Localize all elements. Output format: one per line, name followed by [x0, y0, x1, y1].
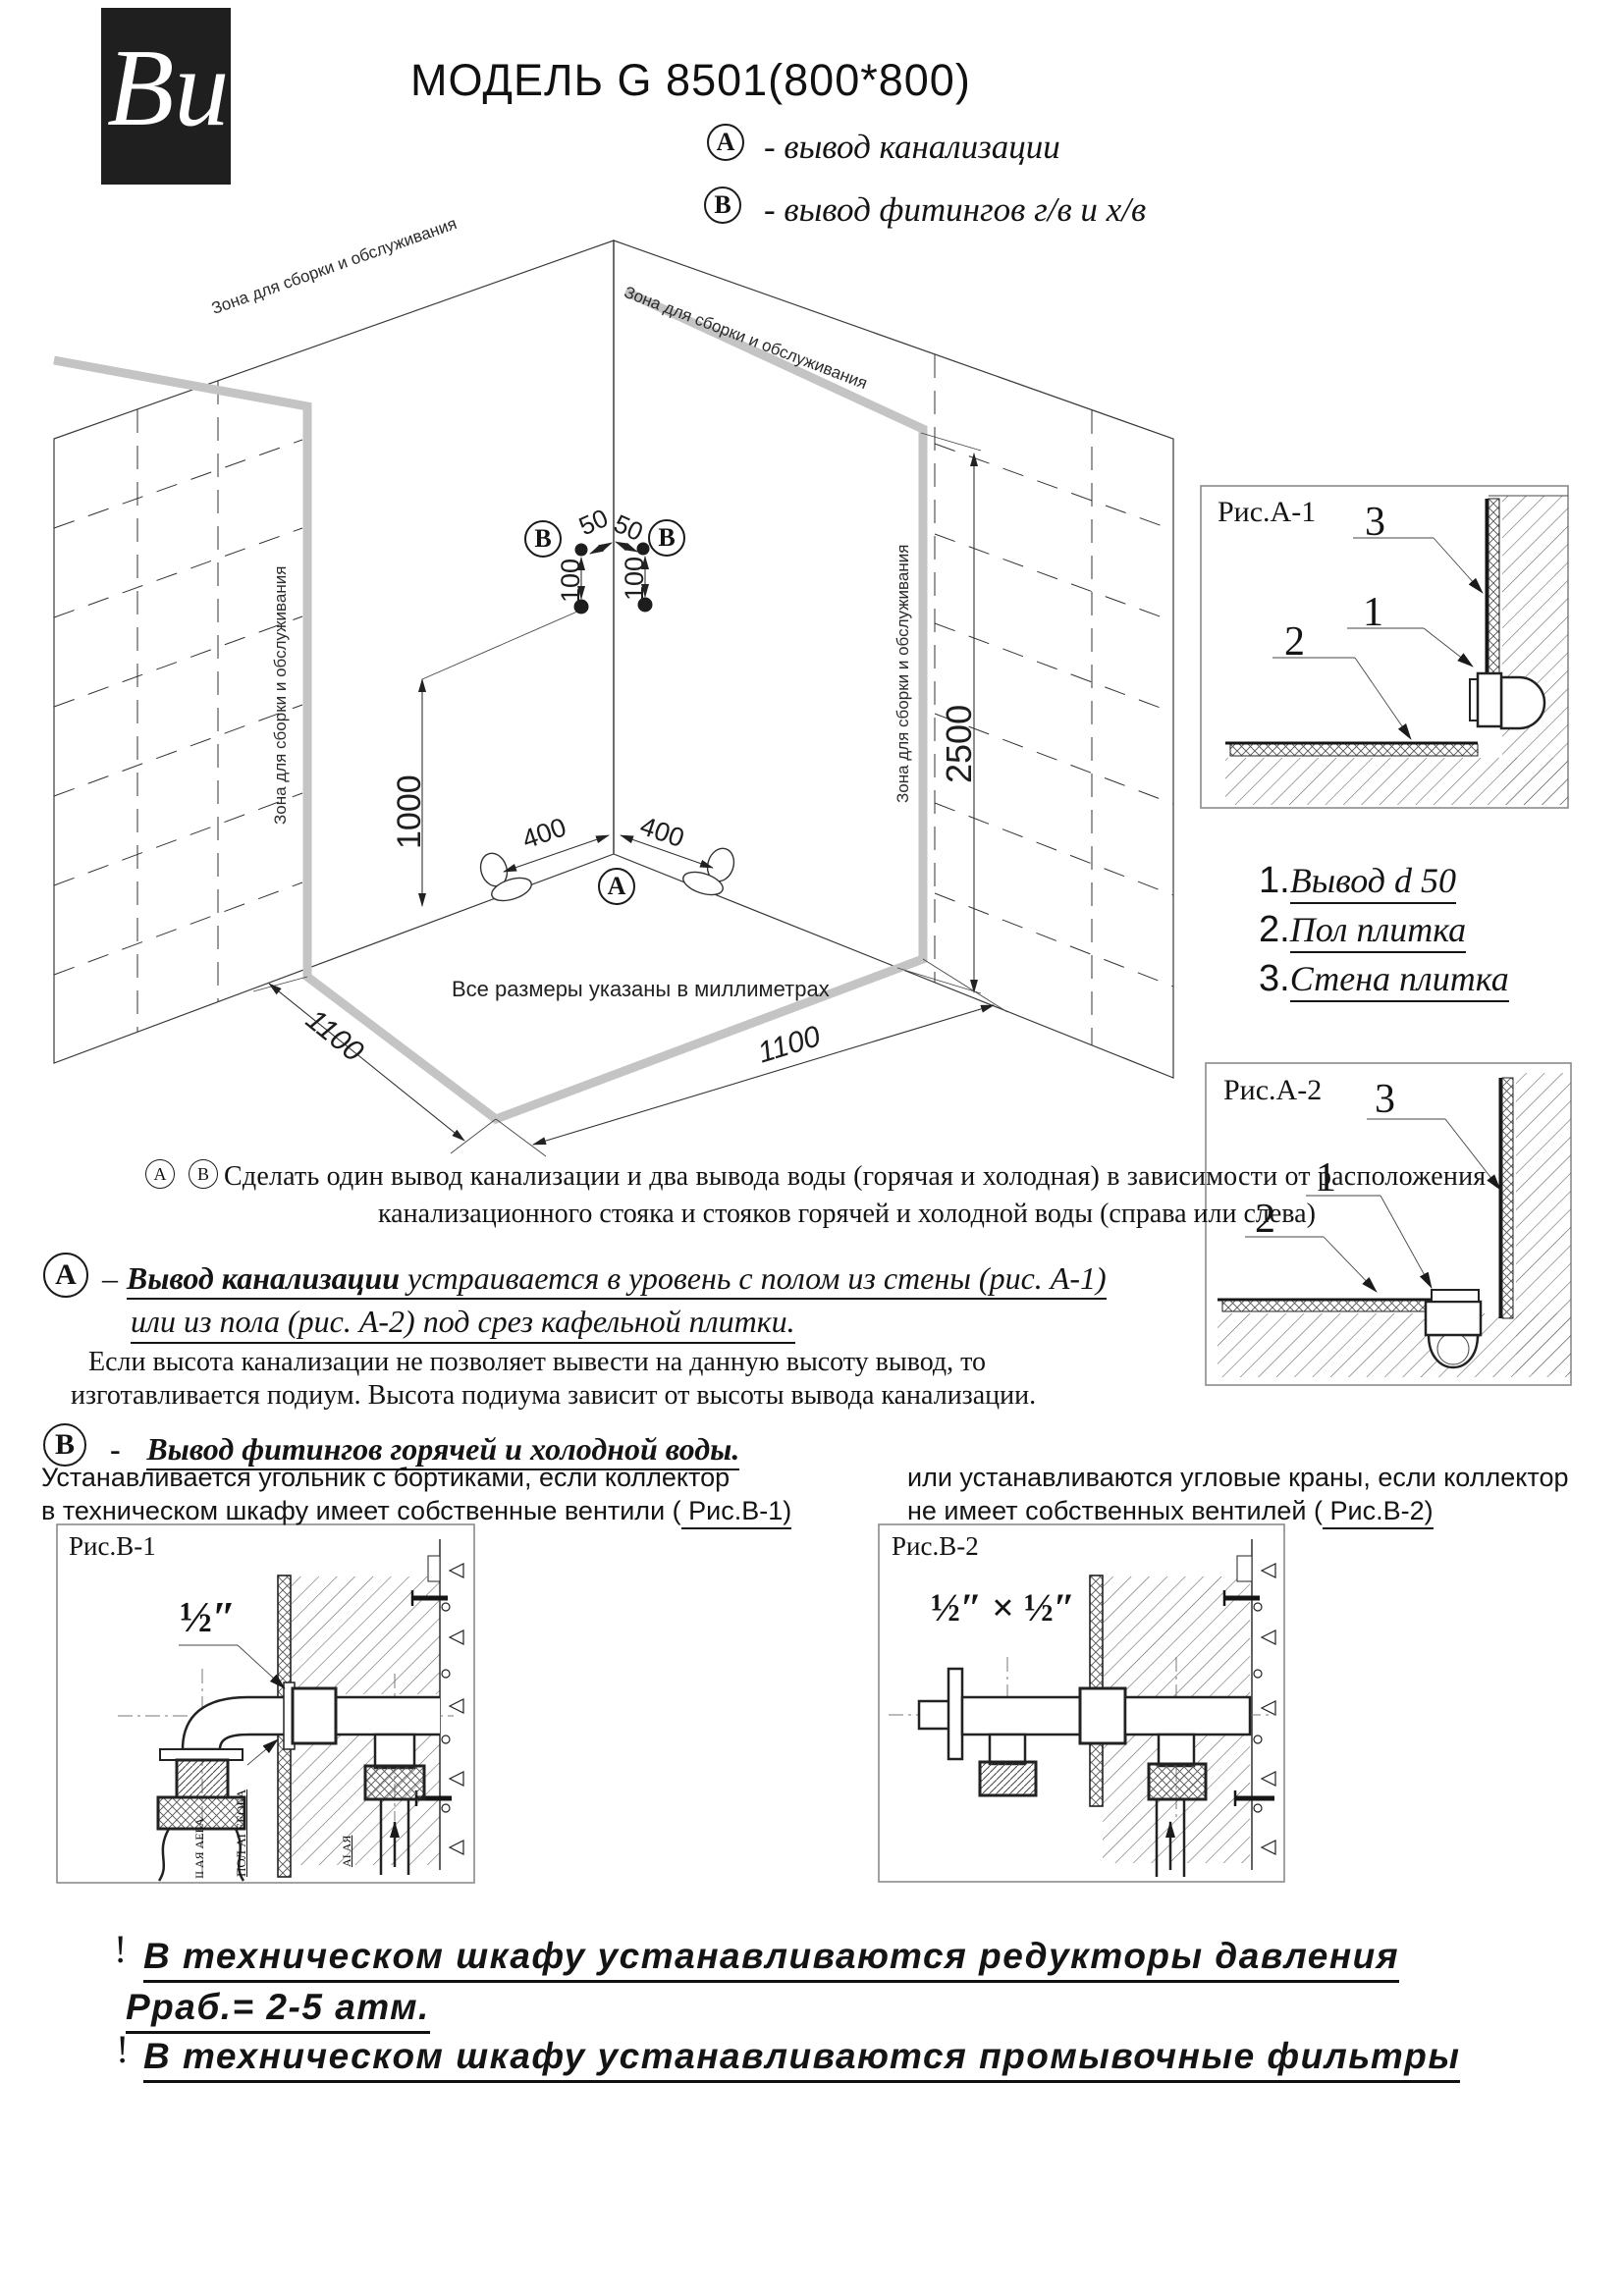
section-a-line4: изготавливается подиум. Высота подиума з… — [71, 1380, 1036, 1412]
legend-a-text: - вывод канализации — [764, 128, 1060, 167]
legend-b-marker: B — [704, 187, 741, 224]
section-b-left-line1: Устанавливается угольник с бортиками, ес… — [41, 1463, 730, 1493]
part-text: Стена плитка — [1290, 959, 1509, 1002]
section-a-line3: Если высота канализации не позволяет выв… — [88, 1347, 986, 1378]
part-text: Вывод d 50 — [1290, 861, 1456, 904]
brand-logo-text: Ви — [107, 26, 229, 152]
dim-100-right: 100 — [620, 557, 650, 601]
fig-a1-label-2: 2 — [1284, 618, 1305, 666]
note-ab-line2: канализационного стояка и стояков горяче… — [378, 1199, 1316, 1230]
warning-line-1: В техническом шкафу устанавливаются реду… — [143, 1936, 1399, 1983]
note-ab-marker-b: В — [189, 1159, 218, 1189]
fig-b1-rotated-label-tee: АІ АЯ — [340, 1836, 354, 1867]
fig-a1-title: Рис.А-1 — [1218, 496, 1316, 529]
part-text: Пол плитка — [1290, 910, 1466, 953]
fig-b2-title: Рис.В-2 — [892, 1531, 979, 1562]
fig-b2-art — [879, 1524, 1284, 1882]
warning-line-3: В техническом шкафу устанавливаются пром… — [143, 2036, 1460, 2083]
section-b-dash: - — [110, 1431, 121, 1467]
dim-2500: 2500 — [939, 705, 980, 783]
fig-a1-label-3: 3 — [1365, 499, 1385, 546]
section-a-line1-rest: устраивается в уровень с полом из стены … — [400, 1260, 1107, 1296]
zone-label-left-wall: Зона для сборки и обслуживания — [271, 566, 291, 825]
legend-b-text: - вывод фитингов г/в и х/в — [764, 190, 1146, 230]
warning-mark-1: ! — [114, 1926, 127, 1972]
section-a-marker: А — [43, 1253, 88, 1298]
section-b-marker: В — [43, 1423, 86, 1467]
fig-a2-title: Рис.А-2 — [1223, 1074, 1322, 1107]
brand-logo: Ви — [101, 8, 231, 185]
fig-b2-reference: Рис.В-2) — [1323, 1496, 1434, 1529]
part-num: 1. — [1259, 860, 1290, 901]
fig-b1-reference: Рис.В-1) — [681, 1496, 792, 1529]
section-a-line1: – Вывод канализации устраивается в урове… — [102, 1260, 1107, 1297]
note-ab-marker-a: А — [145, 1159, 175, 1189]
section-a-line2: или из пола (рис. А-2) под срез кафельно… — [131, 1304, 795, 1344]
section-a-dash: – — [102, 1260, 118, 1296]
instruction-sheet: Ви МОДЕЛЬ G 8501(800*800) A - вывод кана… — [0, 0, 1624, 2296]
dim-1000: 1000 — [391, 774, 429, 849]
legend-a-marker: A — [707, 124, 744, 161]
marker-b-left: B — [524, 520, 562, 558]
part-num: 3. — [1259, 958, 1290, 999]
section-a-term: Вывод канализации — [127, 1260, 400, 1296]
dim-100-left: 100 — [556, 559, 586, 603]
warning-line-2: Рраб.= 2-5 атм. — [126, 1987, 430, 2034]
fig-a2-label-3: 3 — [1375, 1076, 1395, 1123]
section-b-left-line2: в техническом шкафу имеет собственные ве… — [41, 1496, 791, 1526]
part-num: 2. — [1259, 909, 1290, 950]
diagram-note: Все размеры указаны в миллиметрах — [452, 977, 830, 1002]
fig-b1-title: Рис.В-1 — [69, 1531, 156, 1562]
parts-list-item-1: 1.Вывод d 50 — [1259, 860, 1456, 902]
fig-b2-size-label: ½″ × ½″ — [931, 1584, 1075, 1630]
marker-a-drain: A — [598, 868, 635, 905]
marker-b-right: B — [648, 519, 685, 557]
parts-list-item-2: 2.Пол плитка — [1259, 909, 1466, 951]
fig-b1-size-label: ½″ — [180, 1592, 236, 1642]
warning-mark-2: ! — [116, 2026, 129, 2072]
fig-a1-label-1: 1 — [1363, 589, 1383, 636]
fig-b1-rotated-label-wall: ПОЛ АІ ЕЕОБА — [234, 1789, 249, 1877]
note-ab-line1: Сделать один вывод канализации и два выв… — [224, 1161, 1486, 1193]
section-b-right-line2: не имеет собственных вентилей ( Рис.В-2) — [907, 1496, 1434, 1526]
page-title: МОДЕЛЬ G 8501(800*800) — [410, 55, 971, 106]
parts-list-item-3: 3.Стена плитка — [1259, 958, 1509, 1000]
zone-label-right-wall: Зона для сборки и обслуживания — [893, 545, 913, 803]
main-diagram-art — [54, 240, 1173, 1156]
fig-b1-art — [57, 1524, 474, 1883]
section-b-right-line1: или устанавливаются угловые краны, если … — [907, 1463, 1568, 1493]
fig-b1-rotated-label-hose: ІІ АЯ АЕБА — [192, 1818, 207, 1879]
